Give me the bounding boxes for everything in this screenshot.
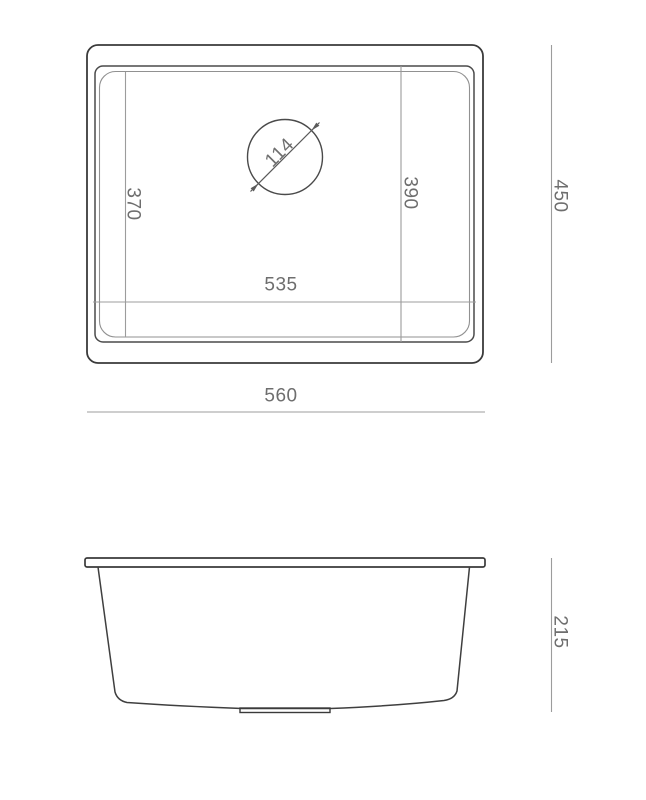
dim-label-560: 560 xyxy=(264,386,297,407)
side-view: 215 xyxy=(85,558,570,713)
top-view: 370 390 535 114 xyxy=(87,45,483,363)
dim-label-215: 215 xyxy=(549,615,570,648)
dim-label-370: 370 xyxy=(122,187,143,220)
sink-technical-drawing: 370 390 535 114 560 450 215 xyxy=(0,0,646,800)
dim-label-390: 390 xyxy=(399,176,420,209)
top-view-outer-edge xyxy=(87,45,483,363)
side-view-drain-boss xyxy=(240,708,330,713)
drawing-canvas: 370 390 535 114 560 450 215 xyxy=(0,0,646,800)
dim-label-535: 535 xyxy=(264,275,297,296)
side-view-rim-flange xyxy=(85,558,485,567)
dim-label-114: 114 xyxy=(261,134,298,171)
top-view-outer-dimensions: 560 450 xyxy=(87,45,570,412)
dim-label-450: 450 xyxy=(549,179,570,212)
side-view-bowl-profile xyxy=(98,567,470,709)
